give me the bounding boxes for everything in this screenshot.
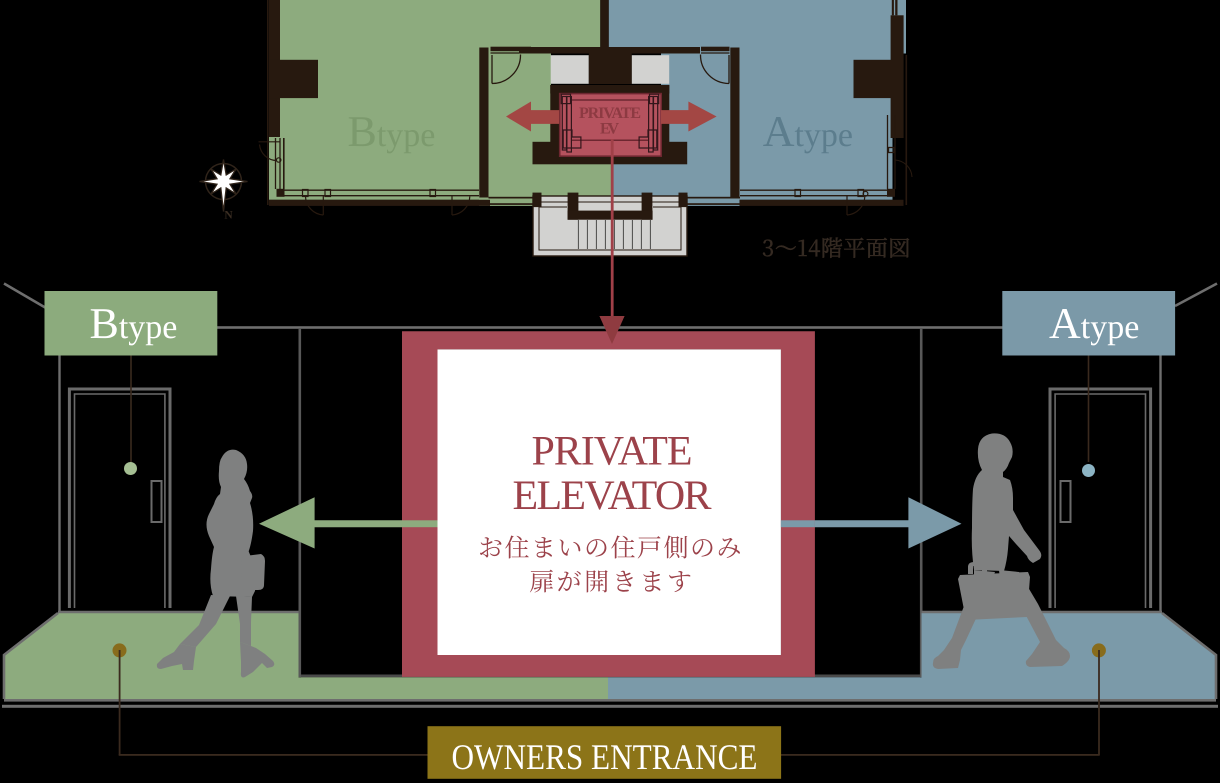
- svg-text:PRIVATE: PRIVATE: [579, 105, 641, 122]
- svg-text:ELEVATOR: ELEVATOR: [513, 473, 712, 519]
- svg-text:PRIVATE: PRIVATE: [532, 429, 693, 475]
- svg-text:OWNERS ENTRANCE: OWNERS ENTRANCE: [452, 737, 758, 777]
- svg-text:N: N: [224, 210, 233, 222]
- svg-text:EV: EV: [600, 120, 619, 137]
